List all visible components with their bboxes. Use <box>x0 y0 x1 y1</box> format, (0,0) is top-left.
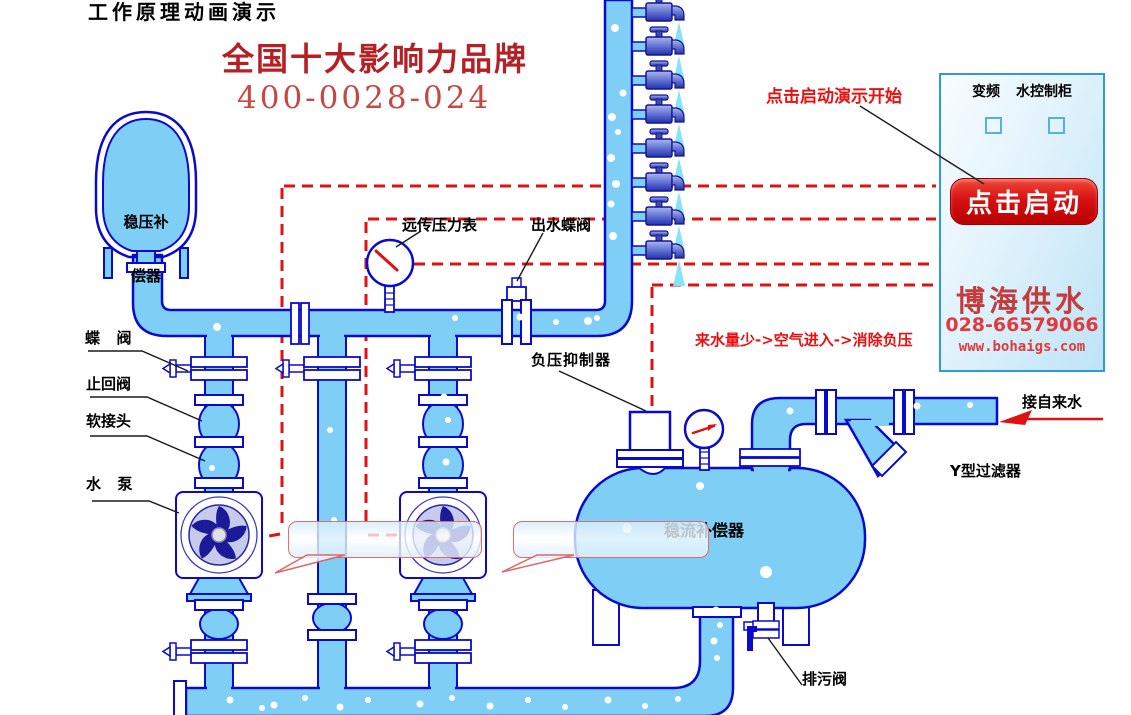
brand-hotline: 400-0028-024 <box>237 80 491 117</box>
soft-joint-label: 软接头 <box>86 412 131 430</box>
flange <box>195 478 243 488</box>
inlet-flange <box>816 390 825 434</box>
pump-label: 水 泵 <box>86 475 134 493</box>
fading-callout-2-tail <box>492 554 582 576</box>
surge-tank-label-line1: 稳压补 <box>104 213 188 231</box>
flange <box>195 437 243 447</box>
remote-gauge-label: 远传压力表 <box>402 216 477 234</box>
check-valve-label: 止回阀 <box>86 375 131 393</box>
pump-unit-1 <box>163 357 262 663</box>
vacuum-suppressor-label: 负压抑制器 <box>531 351 611 369</box>
remote-pressure-gauge <box>367 240 413 312</box>
pump-pedestal <box>414 578 472 594</box>
indicator-checkbox-2[interactable] <box>1048 117 1065 134</box>
inlet-flange <box>905 390 914 434</box>
tank-pressure-gauge <box>685 410 723 470</box>
cabinet-header: 变频 水控制柜 <box>941 81 1103 101</box>
flange <box>195 395 243 405</box>
brand-slogan: 全国十大影响力品牌 <box>222 40 528 78</box>
pump-pedestal <box>190 578 248 594</box>
faucet-row <box>632 0 685 286</box>
surge-tank-label: 稳压补 偿器 <box>104 177 188 303</box>
header-flange-b <box>301 303 309 344</box>
fading-callout-1 <box>288 521 482 558</box>
surge-tank-label-line2: 偿器 <box>104 267 188 285</box>
control-cabinet: 变频 水控制柜 点击启动 博海供水 028-66579066 www.bohai… <box>939 73 1105 372</box>
y-filter-label: Y型过滤器 <box>950 462 1021 480</box>
manifold-end-cap <box>174 681 186 715</box>
cabinet-label-left: 变频 <box>972 81 1000 101</box>
fading-callout-2 <box>513 521 709 558</box>
inlet-bottom-flange-a <box>740 449 800 457</box>
start-demo-button[interactable]: 点击启动 <box>950 178 1098 225</box>
company-phone: 028-66579066 <box>941 314 1103 336</box>
cabinet-label-right: 水控制柜 <box>1016 81 1072 101</box>
butterfly-valve-label: 蝶 阀 <box>85 329 133 347</box>
indicator-checkbox-1[interactable] <box>985 117 1002 134</box>
tap-water-label: 接自来水 <box>1022 393 1082 411</box>
fading-callout-1-tail <box>265 554 355 576</box>
page-title: 工作原理动画演示 <box>88 0 280 24</box>
pump-1 <box>176 492 262 578</box>
drain-valve <box>744 603 779 651</box>
process-hint: 来水量少->空气进入->消除负压 <box>695 331 913 349</box>
inlet-bottom-flange-b <box>740 458 800 466</box>
outlet-valve-label: 出水蝶阀 <box>531 216 591 234</box>
header-flange-a <box>291 303 299 344</box>
inlet-flange <box>827 390 836 434</box>
vacuum-suppressor <box>617 412 683 474</box>
inlet-flange <box>894 390 903 434</box>
start-hint: 点击启动演示开始 <box>766 87 902 107</box>
company-website: www.bohaigs.com <box>941 339 1103 355</box>
tap-water-arrow <box>999 410 1103 425</box>
pump-unit-2 <box>387 357 486 663</box>
demo-screen: 工作原理动画演示 全国十大影响力品牌 400-0028-024 稳压补 偿器 蝶… <box>0 0 1131 715</box>
drain-valve-label: 排污阀 <box>802 670 847 688</box>
